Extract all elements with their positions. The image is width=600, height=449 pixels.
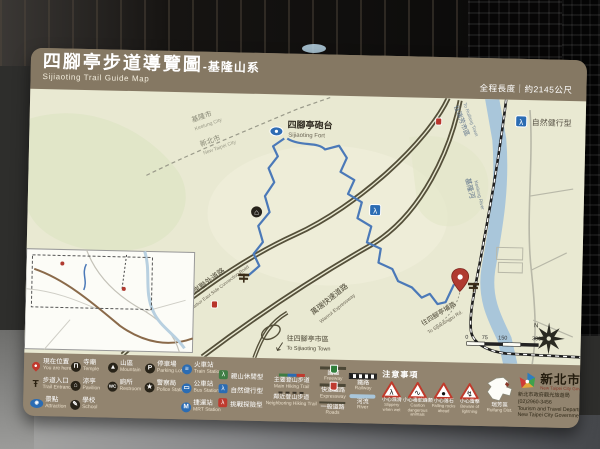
label-zh: 挑戰探險型 — [230, 398, 263, 409]
route-shield — [436, 118, 442, 125]
attraction-icon: ◉ — [30, 399, 43, 408]
trail-type-nature: λ 自然健行型 — [218, 384, 263, 395]
label-zh: 自然健行型 — [230, 384, 263, 395]
legend-band: 現在位置You are here Ŧ 步道入口Trail Entrance ◉ … — [23, 353, 580, 429]
parking-icon: P — [145, 363, 155, 373]
notice-section: 注意事項 λ 小心濕滑 Slippery when wet ∿ — [379, 368, 482, 418]
legend-symbols: 現在位置You are here Ŧ 步道入口Trail Entrance ◉ … — [30, 356, 216, 417]
legend-item-restroom: WC 廁所Restroom — [107, 380, 141, 393]
legend-item-attraction: ◉ 景點Attraction — [30, 397, 67, 410]
label-en: Expressway — [320, 394, 346, 400]
new-taipei-gov-logo-icon — [518, 372, 537, 391]
label-en: Attraction — [45, 404, 66, 410]
label-en: Parking Lot — [157, 369, 182, 375]
label-en: Beware of lightning — [457, 405, 481, 414]
line-legend-rail-river: 鐵路 Railway 河流 River — [349, 373, 378, 411]
fort-label-en: Sijiaoting Fort — [288, 133, 325, 140]
district-locator: 瑞芳區 Ruifang Dist. — [485, 376, 516, 413]
main-trail-line: 主要登山步道 Main Hiking Trail — [266, 374, 317, 391]
svg-text:λ: λ — [390, 387, 394, 396]
freeway-shield-icon — [330, 364, 338, 373]
government-block: 新北市政府 New Taipei City Government 新北市政府觀光… — [517, 372, 580, 421]
svg-text:∿: ∿ — [415, 388, 422, 397]
warning-triangle-icon: ↯ — [460, 382, 480, 399]
legend-item-train: ≡ 火車站Train Station — [182, 363, 216, 376]
map-block — [497, 247, 523, 260]
legend-spacer — [107, 405, 141, 406]
title-suffix: -基隆山系 — [203, 60, 260, 75]
expressway-shield-icon — [330, 382, 338, 391]
label-en: Main Hiking Trail — [274, 384, 310, 390]
label-en: MRT Station — [193, 408, 221, 414]
restroom-icon: WC — [107, 381, 117, 391]
photo-of-trail-sign: 四腳亭步道導覽圖-基隆山系 Sijiaoting Trail Guide Map… — [0, 0, 600, 449]
hiking-type-icon: λ — [516, 116, 527, 127]
legend-item-mrt: M 捷運站MRT Station — [181, 401, 215, 414]
government-identity: 新北市政府 New Taipei City Government — [518, 372, 580, 393]
legend-item-bus: ▭ 公車站Bus Station — [181, 382, 215, 395]
trail-type-leisure: λ 親山休閒型 — [219, 370, 264, 381]
trail-type-badge-label: 自然健行型 — [532, 117, 572, 128]
background-object — [302, 44, 326, 53]
you-are-here-pin — [451, 268, 469, 291]
svg-text:N: N — [534, 323, 538, 329]
warning-triangle-icon: ∿ — [408, 381, 428, 398]
legend-item-you-are-here: 現在位置You are here — [31, 359, 68, 372]
svg-text:●: ● — [441, 388, 446, 397]
gov-contact: 新北市政府觀光旅遊局 (02)2960-3456 Tourism and Tra… — [517, 392, 580, 421]
label-en: Slippery when wet — [380, 403, 404, 412]
caution-slippery: λ 小心濕滑 Slippery when wet — [379, 380, 404, 417]
new-taipei-outline-map — [486, 376, 515, 403]
direction-arrow — [276, 342, 282, 350]
expressway-line: 快速道路 Expressway — [320, 384, 346, 400]
svg-text:0: 0 — [465, 335, 468, 341]
railway-sample — [349, 373, 377, 380]
route-shield — [211, 301, 217, 308]
terrain-shade — [27, 112, 188, 253]
railway-line — [470, 99, 586, 357]
label-en: School — [82, 405, 97, 411]
hiker-icon: λ — [218, 384, 227, 393]
svg-text:150: 150 — [498, 335, 507, 341]
trail-entrance-icon: Ŧ — [30, 379, 40, 389]
line-legend-roads: 國道 Freeway 快速道路 Expressway 一般道路 Roads — [319, 366, 346, 416]
label-en: You are here — [43, 366, 72, 372]
legend-spacer — [144, 406, 178, 407]
school-icon: ✎ — [70, 399, 80, 409]
label-en: Neighboring Hiking Trail — [266, 401, 317, 407]
label-en: Restroom — [119, 387, 141, 393]
legend-item-trail-entrance: Ŧ 步道入口Trail Entrance — [30, 378, 67, 391]
hiker-icon: λ — [218, 398, 227, 407]
warning-triangle-icon: ● — [434, 381, 454, 398]
train-station-icon: ≡ — [182, 364, 192, 374]
neighboring-trail-line: 鄰近登山步道 Neighboring Hiking Trail — [266, 391, 317, 407]
to-town-label: 往四腳亭市區 — [287, 334, 329, 344]
trail-type-challenge: λ 挑戰探險型 — [218, 398, 263, 409]
hiking-type-icon: λ — [370, 204, 381, 215]
gov-name-en: New Taipei City Government — [540, 386, 580, 392]
trail-length-label: 全程長度｜約2145公尺 — [479, 82, 572, 96]
svg-text:75: 75 — [482, 335, 488, 341]
main-trail-sample — [279, 374, 305, 378]
map-block — [498, 262, 522, 273]
legend-item-pavilion: ⌂ 涼亭Pavilion — [70, 379, 104, 392]
temple-icon: Π — [71, 361, 81, 371]
caution-animals: ∿ 小心毒蛇蜂類 Caution dangerous animals — [405, 381, 430, 418]
legend-item-school: ✎ 學校School — [70, 398, 104, 411]
caution-falling-rocks: ● 小心落石 Falling rocks ahead — [431, 381, 456, 418]
caution-icons: λ 小心濕滑 Slippery when wet ∿ 小心毒蛇蜂類 Cautio… — [379, 380, 482, 418]
you-are-here-icon — [30, 360, 41, 371]
trail-map: 基隆市 Keelung City 新北市 New Taipei City — [24, 89, 586, 366]
label-zh: 親山休閒型 — [231, 370, 264, 381]
district-label-en: Ruifang Dist. — [487, 408, 513, 413]
line-legend-trails: 主要登山步道 Main Hiking Trail 鄰近登山步道 Neighbor… — [266, 374, 318, 407]
hiker-icon: λ — [219, 370, 228, 379]
svg-text:⌂: ⌂ — [254, 208, 259, 217]
label-en: River — [357, 405, 368, 410]
label-en: Falling rocks ahead — [431, 404, 455, 413]
interchange-ramp — [254, 312, 287, 359]
label-en: Caution dangerous animals — [405, 404, 429, 418]
pavilion-icon: ⌂ — [70, 380, 80, 390]
trail-entrance-icon — [468, 283, 479, 292]
caution-lightning: ↯ 小心雷擊 Beware of lightning — [457, 382, 482, 419]
river-sample — [350, 394, 376, 399]
to-town-label-en: To Sijiaoting Town — [286, 346, 330, 353]
title-zh: 四腳亭步道導覽圖 — [43, 51, 203, 75]
trail-type-legend: λ 親山休閒型 λ 自然健行型 λ 挑戰探險型 — [218, 370, 263, 409]
mrt-station-icon: M — [181, 402, 191, 412]
legend-item-temple: Π 寺廟Temple — [71, 360, 105, 373]
svg-text:λ: λ — [373, 207, 377, 216]
legend-item-parking: P 停車場Parking Lot — [145, 362, 179, 375]
label-en: Railway — [355, 387, 372, 392]
notice-title: 注意事項 — [382, 368, 482, 381]
label-en: Trail Entrance — [42, 385, 73, 391]
svg-text:↯: ↯ — [467, 389, 474, 398]
inset-overview-map — [24, 249, 194, 353]
label-en: Temple — [83, 367, 99, 373]
svg-text:λ: λ — [519, 118, 523, 127]
label-en: Pavilion — [82, 386, 100, 392]
expressway-sample — [320, 384, 346, 388]
gov-dept-en: New Taipei City Government — [517, 412, 580, 421]
fort-label: 四腳亭砲台 — [287, 119, 332, 131]
gov-name: 新北市政府 New Taipei City Government — [540, 373, 580, 393]
legend-item-mountain: ▲ 山區Mountain — [108, 361, 142, 374]
freeway-sample — [320, 366, 346, 370]
roads-line: 一般道路 Roads — [319, 401, 345, 416]
attraction-icon — [270, 127, 283, 136]
mountain-icon: ▲ — [108, 362, 118, 372]
warning-triangle-icon: λ — [382, 380, 402, 397]
railway-line-item: 鐵路 Railway — [349, 373, 377, 392]
police-icon: ★ — [144, 382, 154, 392]
bus-station-icon: ▭ — [181, 383, 191, 393]
legend-item-police: ★ 警察局Police Station — [144, 381, 178, 394]
label-en: Roads — [325, 411, 339, 416]
trail-guide-sign: 四腳亭步道導覽圖-基隆山系 Sijiaoting Trail Guide Map… — [23, 48, 587, 429]
label-en: Mountain — [120, 368, 141, 374]
trail-map-area: 基隆市 Keelung City 新北市 New Taipei City — [24, 89, 586, 366]
river-line-item: 河流 River — [349, 394, 377, 411]
freeway-line: 國道 Freeway — [320, 366, 346, 382]
label-en: Bus Station — [193, 389, 219, 395]
